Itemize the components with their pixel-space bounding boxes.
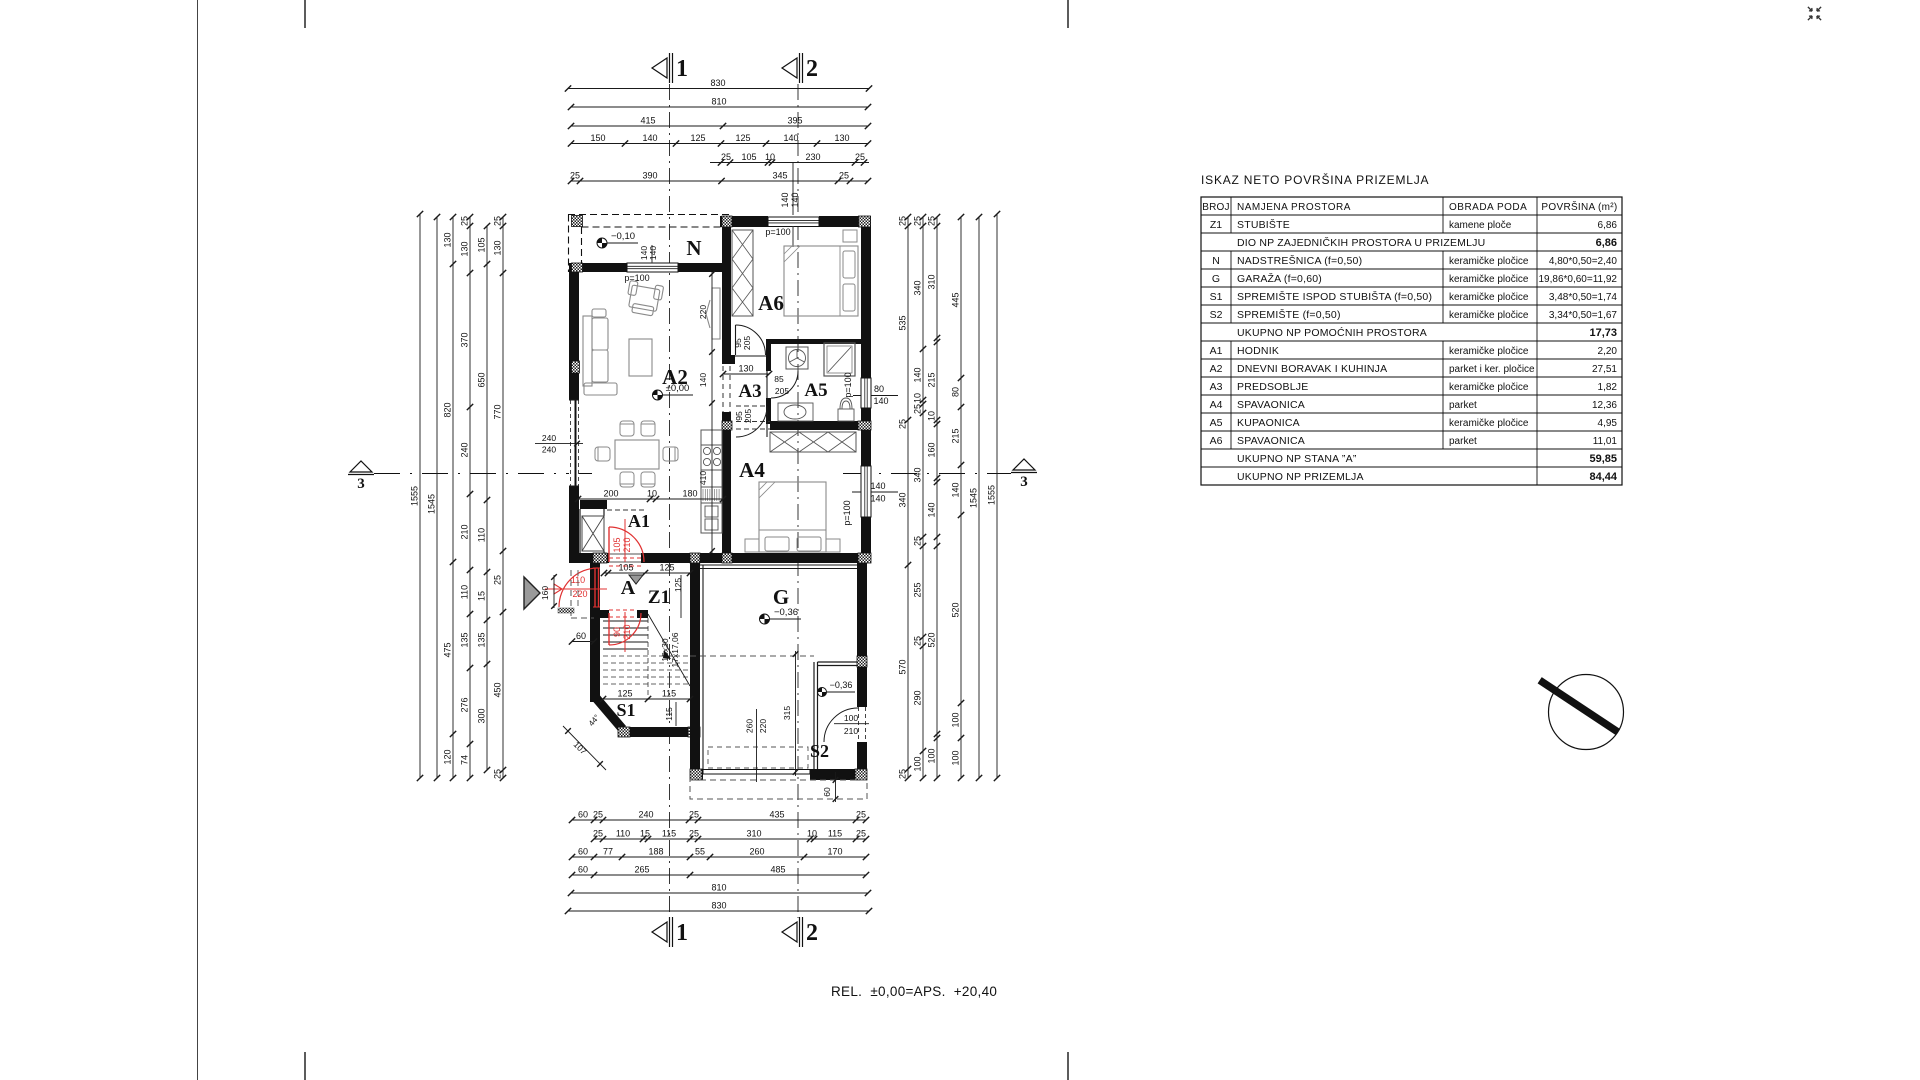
svg-text:276: 276 [460,697,470,712]
svg-text:265: 265 [634,865,649,875]
svg-text:255: 255 [913,582,923,597]
svg-text:140: 140 [927,502,937,517]
svg-text:650: 650 [477,372,487,387]
svg-text:STUBIŠTE: STUBIŠTE [1237,218,1290,231]
svg-text:3,34*0,50=1,67: 3,34*0,50=1,67 [1549,310,1618,321]
svg-text:A3: A3 [1210,381,1223,393]
svg-text:340: 340 [913,280,923,295]
svg-text:140: 140 [642,133,657,143]
svg-text:84,44: 84,44 [1589,471,1617,483]
svg-text:±0,00: ±0,00 [666,383,690,394]
svg-text:ISKAZ NETO POVRŠINA PRIZEMLJA: ISKAZ NETO POVRŠINA PRIZEMLJA [1201,172,1429,187]
svg-text:415: 415 [640,116,655,126]
svg-text:keramičke pločice: keramičke pločice [1449,292,1529,303]
svg-text:keramičke pločice: keramičke pločice [1449,310,1529,321]
svg-text:450: 450 [493,682,503,697]
svg-text:135: 135 [477,632,487,647]
svg-text:80: 80 [874,384,884,394]
svg-text:485: 485 [770,865,785,875]
svg-text:25: 25 [856,810,866,820]
svg-text:25: 25 [913,536,923,546]
svg-text:N: N [1212,255,1220,267]
svg-text:G: G [1212,273,1220,285]
svg-text:125: 125 [617,689,632,699]
svg-text:188: 188 [648,847,663,857]
svg-text:−0,36: −0,36 [774,607,798,618]
svg-text:SPREMIŠTE (f=0,50): SPREMIŠTE (f=0,50) [1237,308,1341,321]
svg-text:SPAVAONICA: SPAVAONICA [1237,435,1305,447]
svg-text:520: 520 [951,602,961,617]
svg-text:S1: S1 [616,700,635,720]
svg-text:1555: 1555 [410,486,420,506]
svg-text:25: 25 [460,216,470,226]
svg-text:25: 25 [855,152,865,162]
svg-text:UKUPNO NP STANA ”A”: UKUPNO NP STANA ”A” [1237,453,1357,465]
svg-text:1555: 1555 [987,485,997,505]
svg-text:10: 10 [913,393,923,403]
svg-text:170: 170 [827,847,842,857]
svg-text:210: 210 [622,537,632,552]
svg-text:A6: A6 [758,291,784,315]
svg-text:12,36: 12,36 [1592,400,1617,411]
svg-text:100: 100 [951,750,961,765]
svg-text:220: 220 [572,589,587,599]
svg-text:570: 570 [898,659,908,674]
svg-text:25: 25 [593,829,603,839]
svg-text:200: 200 [603,489,618,499]
svg-text:GARAŽA (f=0,60): GARAŽA (f=0,60) [1237,272,1322,285]
svg-text:A5: A5 [804,380,827,401]
svg-text:340: 340 [913,467,923,482]
svg-text:NAMJENA PROSTORA: NAMJENA PROSTORA [1237,202,1351,213]
svg-text:UKUPNO NP PRIZEMLJA: UKUPNO NP PRIZEMLJA [1237,471,1364,483]
svg-text:535: 535 [898,315,908,330]
svg-text:25: 25 [493,575,503,585]
svg-text:S1: S1 [1210,291,1223,303]
svg-text:1545: 1545 [427,494,437,514]
svg-text:115: 115 [828,829,842,839]
svg-text:240: 240 [638,810,653,820]
svg-text:130: 130 [493,240,503,255]
svg-text:140: 140 [698,373,708,387]
svg-text:25: 25 [913,216,923,226]
svg-text:p=100: p=100 [624,273,649,283]
svg-text:830: 830 [711,901,726,911]
svg-text:120: 120 [443,749,453,764]
svg-text:80: 80 [951,387,961,397]
svg-text:25: 25 [493,769,503,779]
svg-text:25: 25 [856,829,866,839]
svg-text:10: 10 [765,152,775,162]
svg-text:25: 25 [898,419,908,429]
svg-text:220: 220 [758,719,768,733]
svg-text:SPREMIŠTE ISPOD STUBIŠTA (f=0,: SPREMIŠTE ISPOD STUBIŠTA (f=0,50) [1237,290,1432,303]
svg-text:6,86: 6,86 [1596,237,1617,249]
svg-text:A2: A2 [1210,363,1223,375]
svg-text:parket i ker. pločice: parket i ker. pločice [1449,364,1535,375]
svg-text:Z1: Z1 [648,587,670,608]
svg-text:310: 310 [927,274,937,289]
svg-text:115: 115 [664,707,674,721]
svg-text:77: 77 [603,847,613,857]
svg-text:340: 340 [898,492,908,507]
svg-text:240: 240 [542,445,556,455]
svg-text:S2: S2 [1210,309,1223,321]
svg-text:215: 215 [927,372,937,387]
svg-text:110: 110 [460,585,470,599]
svg-text:25: 25 [898,216,908,226]
svg-text:1: 1 [676,56,688,82]
svg-text:140: 140 [870,481,885,491]
svg-text:100: 100 [844,713,858,723]
svg-text:3: 3 [1020,474,1028,490]
svg-text:25: 25 [689,810,699,820]
svg-text:300: 300 [477,708,487,723]
svg-text:140: 140 [780,192,790,207]
svg-text:10: 10 [927,411,937,421]
svg-text:2: 2 [806,920,818,946]
svg-text:PREDSOBLJE: PREDSOBLJE [1237,381,1308,393]
svg-text:390: 390 [642,171,657,181]
svg-text:1545: 1545 [969,488,979,508]
svg-text:105: 105 [618,563,633,573]
svg-text:810: 810 [711,883,726,893]
svg-text:160: 160 [540,586,550,600]
svg-text:130: 130 [460,241,470,256]
svg-text:parket: parket [1449,400,1477,411]
svg-text:25: 25 [570,171,580,181]
svg-text:59,85: 59,85 [1589,453,1617,465]
svg-text:A5: A5 [1210,417,1223,429]
svg-text:NADSTREŠNICA (f=0,50): NADSTREŠNICA (f=0,50) [1237,254,1362,267]
svg-text:770: 770 [493,404,503,419]
svg-text:25: 25 [927,216,937,226]
svg-text:215: 215 [951,428,961,443]
svg-text:205: 205 [742,336,752,350]
svg-text:180: 180 [682,489,697,499]
svg-text:DIO NP ZAJEDNIČKIH PROSTORA U: DIO NP ZAJEDNIČKIH PROSTORA U PRIZEMLJU [1237,236,1485,249]
svg-text:A1: A1 [1210,345,1223,357]
svg-text:395: 395 [787,116,802,126]
svg-text:125: 125 [673,578,683,592]
svg-text:p=100: p=100 [765,227,790,237]
svg-text:74: 74 [460,755,470,765]
svg-text:keramičke pločice: keramičke pločice [1449,256,1529,267]
svg-text:445: 445 [951,292,961,307]
svg-text:240: 240 [460,442,470,457]
svg-text:HODNIK: HODNIK [1237,345,1279,357]
svg-text:130: 130 [834,133,849,143]
svg-text:2: 2 [806,56,818,82]
svg-text:10: 10 [807,829,817,839]
svg-text:260: 260 [745,719,755,733]
svg-text:140: 140 [790,192,800,207]
svg-text:210: 210 [622,624,632,639]
svg-text:keramičke pločice: keramičke pločice [1449,274,1529,285]
svg-text:205: 205 [775,386,789,396]
svg-text:POVRŠINA (m²): POVRŠINA (m²) [1541,200,1617,213]
svg-text:85: 85 [774,374,784,384]
svg-text:240: 240 [542,433,556,443]
svg-text:125: 125 [690,133,705,143]
svg-text:110: 110 [477,528,487,542]
svg-text:115: 115 [662,689,676,699]
svg-text:100: 100 [951,712,961,727]
svg-text:−0,36: −0,36 [830,680,853,690]
svg-text:keramičke pločice: keramičke pločice [1449,418,1529,429]
svg-text:4,80*0,50=2,40: 4,80*0,50=2,40 [1549,256,1618,267]
svg-text:60: 60 [576,631,586,641]
svg-text:A4: A4 [739,458,765,482]
svg-text:kamene ploče: kamene ploče [1449,220,1512,231]
svg-text:230: 230 [805,152,820,162]
svg-text:260: 260 [749,847,764,857]
svg-text:60: 60 [822,787,832,797]
svg-text:410: 410 [698,471,708,485]
svg-text:60: 60 [578,847,588,857]
svg-text:315: 315 [782,706,792,720]
svg-text:p=100: p=100 [842,500,852,525]
svg-text:G: G [773,585,789,609]
svg-text:OBRADA PODA: OBRADA PODA [1449,202,1527,213]
svg-text:3: 3 [357,476,365,492]
svg-text:15: 15 [477,591,487,601]
svg-text:205: 205 [743,409,753,423]
svg-text:105: 105 [741,152,756,162]
svg-text:19,86*0,60=11,92: 19,86*0,60=11,92 [1538,274,1617,285]
svg-text:435: 435 [769,810,784,820]
svg-text:16x30: 16x30 [660,638,670,661]
svg-text:A3: A3 [738,381,761,402]
svg-text:370: 370 [460,332,470,347]
svg-text:25: 25 [593,810,603,820]
svg-text:Z1: Z1 [1210,219,1222,231]
svg-text:520: 520 [927,632,937,647]
svg-text:3,48*0,50=1,74: 3,48*0,50=1,74 [1549,292,1618,303]
svg-text:10: 10 [647,489,657,499]
svg-text:105: 105 [477,237,487,252]
svg-text:100: 100 [913,756,923,771]
svg-text:17,73: 17,73 [1589,327,1617,339]
svg-text:4,95: 4,95 [1598,418,1618,429]
svg-text:55: 55 [695,847,705,857]
svg-text:17x17,06: 17x17,06 [670,632,680,667]
svg-text:A1: A1 [628,511,650,531]
svg-text:25: 25 [721,152,731,162]
svg-text:27,51: 27,51 [1592,364,1617,375]
svg-text:125: 125 [735,133,750,143]
svg-text:115: 115 [662,829,676,839]
svg-text:A6: A6 [1210,435,1223,447]
svg-text:90: 90 [612,627,622,637]
svg-text:810: 810 [711,97,726,107]
svg-text:1: 1 [676,920,688,946]
svg-text:2,20: 2,20 [1598,346,1618,357]
svg-text:60: 60 [578,810,588,820]
svg-text:25: 25 [689,829,699,839]
svg-text:25: 25 [913,636,923,646]
svg-text:220: 220 [698,305,708,319]
svg-text:6,86: 6,86 [1598,220,1618,231]
svg-text:140: 140 [951,482,961,497]
svg-text:140: 140 [873,396,888,406]
svg-text:210: 210 [460,524,470,539]
svg-text:130: 130 [738,364,753,374]
svg-text:100: 100 [927,748,937,763]
svg-text:keramičke pločice: keramičke pločice [1449,346,1529,357]
svg-text:UKUPNO NP POMOĆNIH PROSTORA: UKUPNO NP POMOĆNIH PROSTORA [1237,326,1427,339]
svg-text:A4: A4 [1210,399,1223,411]
svg-text:135: 135 [460,632,470,647]
svg-text:REL. ±0,00=APS. +20,40: REL. ±0,00=APS. +20,40 [831,984,997,999]
svg-text:125: 125 [659,563,674,573]
svg-text:keramičke pločice: keramičke pločice [1449,382,1529,393]
svg-text:BROJ: BROJ [1202,202,1229,213]
svg-text:KUPAONICA: KUPAONICA [1237,417,1300,429]
svg-text:140: 140 [783,133,798,143]
svg-text:160: 160 [927,442,937,457]
svg-text:25: 25 [898,769,908,779]
svg-text:140: 140 [870,494,885,504]
svg-text:−0,10: −0,10 [611,231,635,242]
svg-text:345: 345 [772,171,787,181]
svg-text:290: 290 [913,690,923,705]
svg-text:parket: parket [1449,436,1477,447]
svg-text:140: 140 [648,246,658,260]
svg-text:DNEVNI BORAVAK I KUHINJA: DNEVNI BORAVAK I KUHINJA [1237,363,1387,375]
svg-text:15: 15 [640,829,650,839]
svg-text:310: 310 [746,829,761,839]
svg-text:p=100: p=100 [843,372,853,397]
svg-text:210: 210 [844,726,858,736]
svg-text:475: 475 [443,642,453,657]
svg-text:25: 25 [839,171,849,181]
svg-text:25: 25 [493,216,503,226]
svg-text:11,01: 11,01 [1593,436,1618,447]
svg-text:1,82: 1,82 [1598,382,1618,393]
svg-text:130: 130 [443,232,453,247]
svg-text:S2: S2 [810,741,829,761]
svg-text:25: 25 [913,404,923,414]
svg-text:830: 830 [710,78,725,88]
svg-text:820: 820 [443,402,453,417]
svg-text:60: 60 [578,865,588,875]
svg-text:140: 140 [913,367,923,382]
svg-text:105: 105 [612,537,622,552]
svg-text:110: 110 [616,829,630,839]
svg-text:N: N [686,236,701,260]
svg-text:SPAVAONICA: SPAVAONICA [1237,399,1305,411]
svg-text:150: 150 [590,133,605,143]
